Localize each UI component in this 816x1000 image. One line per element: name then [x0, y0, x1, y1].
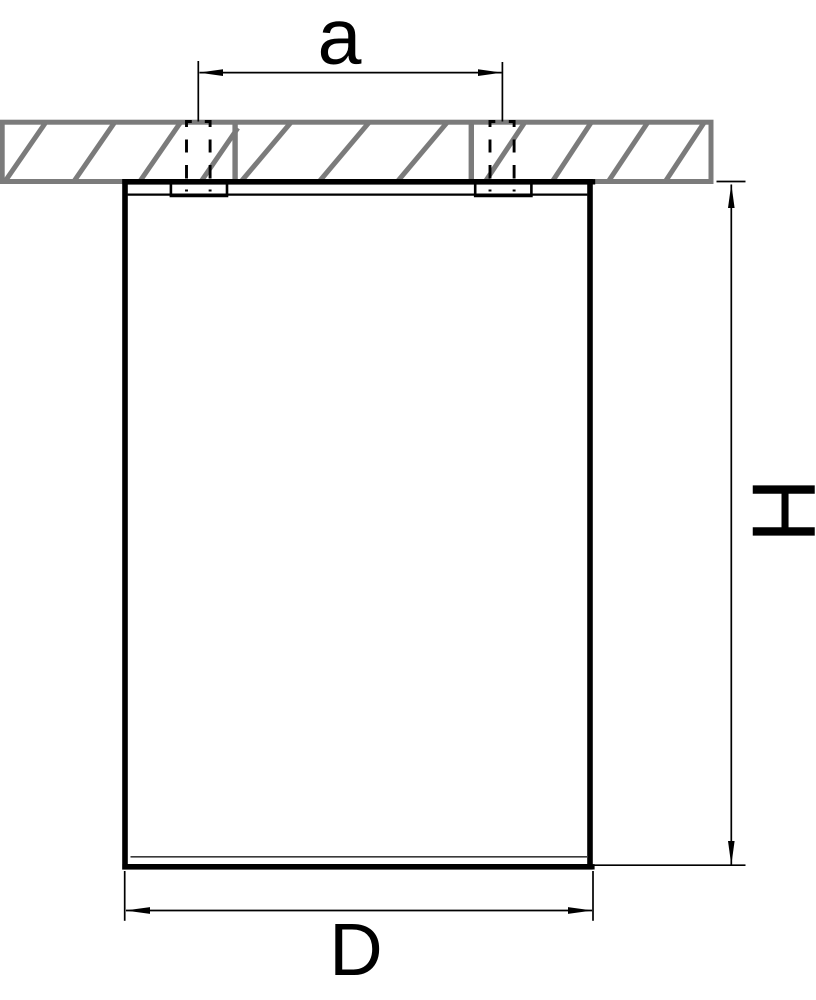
svg-text:H: H — [733, 478, 816, 543]
svg-text:a: a — [318, 0, 362, 81]
svg-text:D: D — [329, 908, 382, 991]
